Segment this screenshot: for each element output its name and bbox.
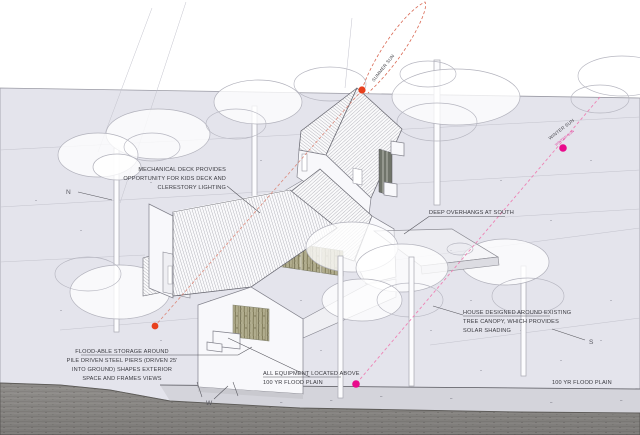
winter-sun-marker: [559, 144, 567, 152]
porch-step: [207, 342, 222, 352]
summer-sun-marker: [152, 323, 159, 330]
architectural-site-diagram: SUMMER SUN WINTER SUN WINTER SUN N W S M…: [0, 0, 640, 435]
note-line: SOLAR SHADING: [463, 328, 511, 334]
compass-south-label: S: [589, 339, 594, 346]
note-line: HOUSE DESIGNED AROUND EXISTING: [463, 310, 571, 316]
summer-sun-marker: [358, 86, 365, 93]
flood-plain-label: 100 YR FLOOD PLAIN: [552, 380, 612, 386]
note-line: FLOOD-ABLE STORAGE AROUND: [75, 349, 168, 355]
note-line: DEEP OVERHANGS AT SOUTH: [429, 210, 514, 216]
clerestory-window: [302, 154, 307, 171]
site-axon-drawing: SUMMER SUN WINTER SUN WINTER SUN N W S M…: [0, 0, 640, 435]
note-line: CLERESTORY LIGHTING: [158, 185, 226, 191]
tree-canopy: [578, 56, 640, 96]
tree-canopy: [214, 80, 302, 124]
window-box: [391, 141, 404, 156]
note-line: PILE DRIVEN STEEL PIERS (DRIVEN 25': [67, 358, 178, 364]
compass-west-label: W: [206, 400, 213, 407]
winter-sun-marker: [352, 380, 360, 388]
tree-canopy: [322, 279, 402, 321]
slit-window: [168, 266, 172, 284]
tree-trunk: [409, 257, 414, 386]
note-line: INTO GROUND) SHAPES EXTERIOR: [72, 367, 172, 373]
note-line: MECHANICAL DECK PROVIDES: [138, 167, 226, 173]
compass-north-label: N: [66, 189, 71, 196]
note-line: 100 YR FLOOD PLAIN: [263, 380, 323, 386]
window: [353, 168, 362, 185]
tree-canopy: [392, 69, 520, 125]
window-box: [384, 182, 397, 197]
note-line: TREE CANOPY, WHICH PROVIDES: [463, 319, 559, 325]
note-line: OPPORTUNITY FOR KIDS DECK AND: [123, 176, 226, 182]
note-line: SPACE AND FRAMES VIEWS: [82, 376, 161, 382]
note-line: ALL EQUIPMENT LOCATED ABOVE: [263, 371, 360, 377]
